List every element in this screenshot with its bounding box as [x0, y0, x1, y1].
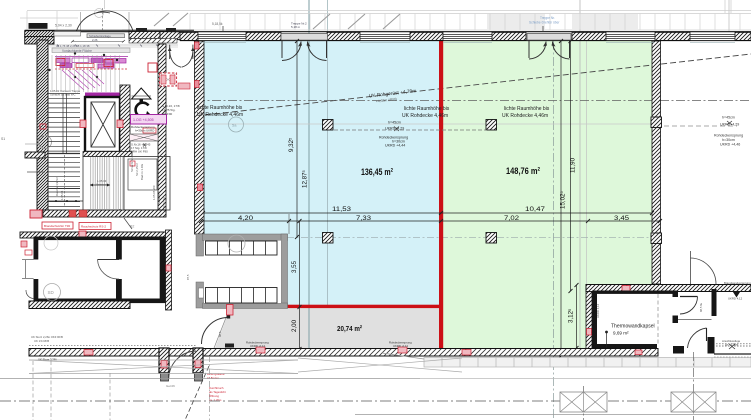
svg-text:B2: B2	[130, 225, 134, 229]
svg-text:88,5: 88,5	[218, 331, 222, 337]
svg-text:3,55: 3,55	[291, 260, 298, 273]
svg-text:Nr.12 S2: Nr.12 S2	[162, 197, 166, 208]
svg-text:9,69 m²: 9,69 m²	[613, 331, 629, 336]
svg-text:UK Rohdecke 4,46m: UK Rohdecke 4,46m	[502, 113, 548, 119]
svg-text:lichte Raumhöhe bis: lichte Raumhöhe bis	[197, 105, 243, 111]
svg-text:UKRD +4,46: UKRD +4,46	[720, 143, 740, 147]
svg-text:Brandschutztür T30: Brandschutztür T30	[44, 224, 70, 228]
svg-text:S1: S1	[1, 137, 5, 141]
svg-text:Treppe Nr.: Treppe Nr.	[540, 16, 555, 20]
svg-text:11,90: 11,90	[570, 157, 577, 173]
svg-text:Vordachkante Fläche: Vordachkante Fläche	[62, 49, 92, 53]
svg-text:h=30cm UKRD: h=30cm UKRD	[135, 129, 154, 133]
svg-text:BRH UK F90: BRH UK F90	[131, 150, 148, 154]
svg-text:3,45: 3,45	[614, 215, 630, 222]
svg-text:Brandwandvorsprung: Brandwandvorsprung	[724, 281, 751, 285]
svg-text:148,76 m²: 148,76 m²	[506, 166, 540, 176]
svg-text:h=45cm: h=45cm	[388, 121, 401, 125]
svg-text:Dusche 1,92m²: Dusche 1,92m²	[55, 177, 59, 196]
svg-text:88,5 flu: 88,5 flu	[699, 302, 703, 312]
svg-text:2,00: 2,00	[291, 319, 298, 332]
svg-text:Gel.06: Gel.06	[166, 384, 175, 388]
svg-text:5a: 5a	[232, 123, 237, 128]
svg-text:Vorraum: Vorraum	[96, 183, 107, 187]
svg-text:UKRD -0,12: UKRD -0,12	[393, 344, 409, 348]
svg-text:lichte Raumhöhe bis: lichte Raumhöhe bis	[504, 106, 550, 112]
svg-text:20,74 m²: 20,74 m²	[337, 324, 362, 333]
svg-text:h=45cm: h=45cm	[722, 116, 735, 120]
svg-text:11,53: 11,53	[332, 206, 352, 213]
svg-text:lichte Raumhöhe bis: lichte Raumhöhe bis	[404, 106, 450, 112]
svg-text:10,47: 10,47	[525, 206, 546, 213]
svg-text:38 1,76 38 2,26 38 1,18: 38 1,76 38 2,26 38 1,18 38	[56, 44, 90, 48]
svg-text:2,26: 2,26	[92, 38, 98, 42]
svg-text:UKRD +4,44: UKRD +4,44	[385, 144, 405, 148]
svg-text:im Boden: im Boden	[207, 376, 219, 380]
svg-text:Bad im 1.OG: Bad im 1.OG	[140, 164, 144, 180]
svg-text:87,5: 87,5	[186, 274, 190, 280]
svg-text:UK F90: UK F90	[162, 112, 173, 116]
svg-text:5,04 x 2,30: 5,04 x 2,30	[55, 24, 72, 28]
svg-text:Rohdeckensprung: Rohdeckensprung	[714, 134, 743, 138]
svg-text:4,20: 4,20	[238, 215, 254, 222]
svg-text:UK Rohdecke 4,46m: UK Rohdecke 4,46m	[402, 113, 448, 119]
svg-text:136,45 m²: 136,45 m²	[361, 167, 393, 177]
svg-text:7,33: 7,33	[356, 215, 372, 222]
svg-text:Schiebe-Drehtür über: Schiebe-Drehtür über	[529, 21, 560, 25]
svg-text:5,18,5k: 5,18,5k	[212, 22, 223, 26]
svg-text:5,18 m: 5,18 m	[291, 25, 301, 29]
svg-text:1.OG +4,505: 1.OG +4,505	[133, 118, 154, 122]
svg-text:UKRD 4,12: UKRD 4,12	[728, 297, 743, 301]
svg-text:UKRD -0,12: UKRD -0,12	[250, 344, 266, 348]
svg-text:1.05.04: 1.05.04	[60, 190, 64, 200]
svg-text:Schacht 4: Schacht 4	[157, 191, 161, 204]
svg-text:UK 1% RFB: UK 1% RFB	[34, 339, 49, 343]
svg-text:Rauchschutz RS-2: Rauchschutz RS-2	[81, 225, 106, 229]
svg-text:SD: SD	[48, 290, 55, 295]
svg-text:S3 2,15m²: S3 2,15m²	[135, 163, 139, 176]
svg-text:Schacht Nr.2: Schacht Nr.2	[130, 156, 134, 172]
svg-text:7,02: 7,02	[504, 215, 520, 222]
svg-text:h=30cm: h=30cm	[722, 138, 735, 142]
svg-text:1.05.05 WC: 1.05.05 WC	[152, 185, 156, 200]
svg-text:UKRD 4,12: UKRD 4,12	[596, 303, 600, 318]
svg-text:Thermowandkapsel: Thermowandkapsel	[611, 324, 655, 330]
svg-text:UK Rohdecke 4,46m: UK Rohdecke 4,46m	[197, 112, 243, 118]
